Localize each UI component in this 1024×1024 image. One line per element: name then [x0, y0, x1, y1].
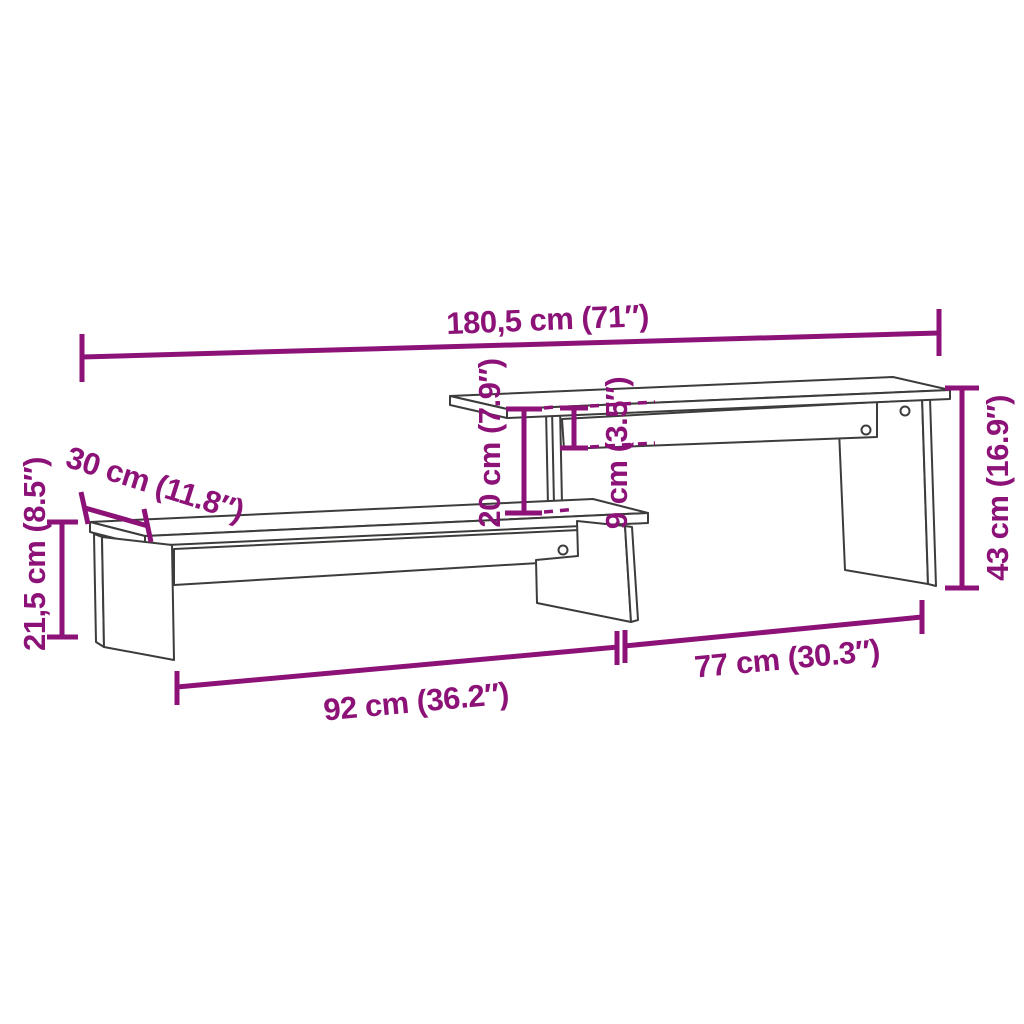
left-side-panel [102, 537, 174, 660]
dimension-left-height: 21,5 cm (8.5″) [17, 457, 78, 651]
dimension-label-shelf-gap: 20 cm (7.9″) [472, 358, 507, 527]
screw-hole [901, 407, 910, 416]
product-dimension-diagram: 180,5 cm (71″) 30 cm (11.8″) 21,5 cm (8.… [0, 0, 1024, 1024]
screw-hole [559, 546, 568, 555]
dim-tick [81, 492, 88, 524]
dimension-label-top-section-height: 9 cm (3.5″) [599, 377, 634, 529]
dimension-label-right-height: 43 cm (16.9″) [980, 395, 1015, 581]
dimension-upper-section-width: 77 cm (30.3″) [624, 600, 922, 685]
dimension-lower-section-width: 92 cm (36.2″) [177, 631, 618, 728]
dimension-label-total-width: 180,5 cm (71″) [446, 298, 650, 341]
dim-line [177, 647, 618, 687]
screw-hole [862, 426, 871, 435]
dimension-label-left-height: 21,5 cm (8.5″) [17, 457, 52, 651]
dimension-right-height: 43 cm (16.9″) [945, 388, 1015, 588]
dimension-label-lower-section-width: 92 cm (36.2″) [322, 676, 510, 728]
dimension-label-depth: 30 cm (11.8″) [62, 440, 248, 529]
dimension-label-upper-section-width: 77 cm (30.3″) [693, 633, 881, 685]
dimension-total-width: 180,5 cm (71″) [82, 298, 939, 382]
